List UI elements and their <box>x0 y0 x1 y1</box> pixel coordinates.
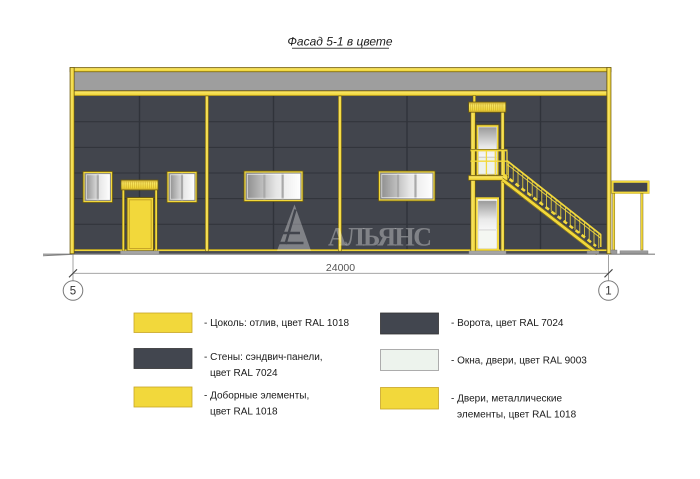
svg-text:- Стены: сэндвич-панели,: - Стены: сэндвич-панели, <box>204 352 323 363</box>
svg-text:5: 5 <box>70 286 76 298</box>
svg-text:цвет RAL 1018: цвет RAL 1018 <box>210 407 278 418</box>
svg-text:цвет RAL 7024: цвет RAL 7024 <box>210 368 278 379</box>
svg-text:элементы, цвет RAL 1018: элементы, цвет RAL 1018 <box>457 410 577 421</box>
svg-text:- Окна, двери, цвет RAL 9003: - Окна, двери, цвет RAL 9003 <box>451 356 587 367</box>
svg-text:- Ворота, цвет RAL 7024: - Ворота, цвет RAL 7024 <box>451 318 564 329</box>
svg-text:- Двери, металлические: - Двери, металлические <box>451 394 562 405</box>
svg-text:- Доборные элементы,: - Доборные элементы, <box>204 390 309 402</box>
svg-text:24000: 24000 <box>326 262 355 274</box>
svg-text:1: 1 <box>605 286 611 298</box>
svg-text:- Цоколь: отлив, цвет RAL 1018: - Цоколь: отлив, цвет RAL 1018 <box>204 318 350 329</box>
svg-text:АЛЬЯНС: АЛЬЯНС <box>328 223 432 252</box>
svg-text:Фасад 5-1 в цвете: Фасад 5-1 в цвете <box>287 35 393 49</box>
